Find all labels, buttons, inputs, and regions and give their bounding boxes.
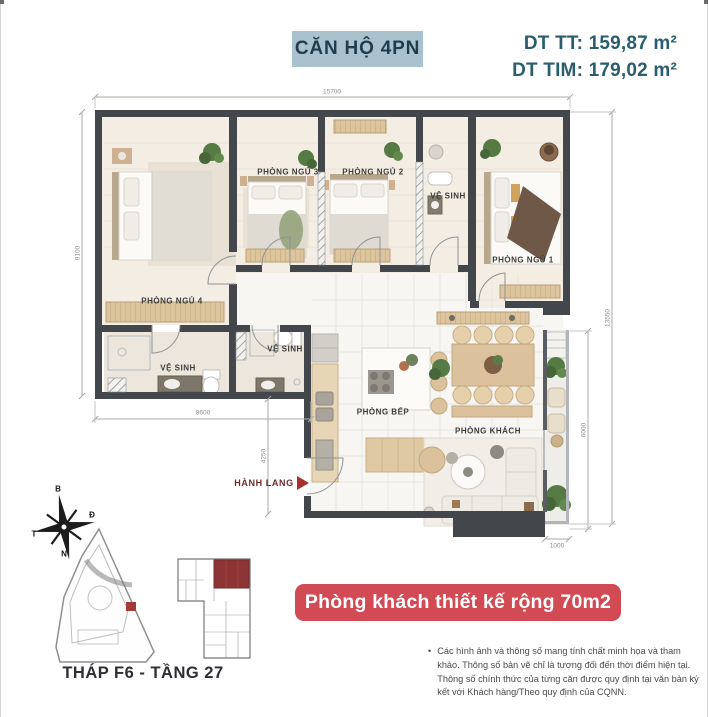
furniture-corridor-console — [437, 312, 529, 324]
room-label-hallway: HÀNH LANG — [234, 478, 293, 488]
room-label-bedroom1: PHÒNG NGỦ 1 — [492, 256, 554, 265]
dim-balcony-bottom: 1000 — [550, 543, 564, 550]
floor-keyplan — [178, 559, 250, 658]
highlighted-unit — [214, 560, 249, 588]
entry-arrow-icon — [297, 476, 309, 490]
room-label-bath-left: VỆ SINH — [160, 364, 196, 373]
compass-west-label: T — [32, 530, 37, 539]
dim-left: 9100 — [75, 246, 82, 260]
dim-right: 13550 — [605, 309, 612, 327]
room-label-bedroom2: PHÒNG NGỦ 2 — [342, 168, 404, 177]
room-label-bedroom3: PHÒNG NGỦ 3 — [257, 168, 319, 177]
room-label-bath-mid: VỆ SINH — [267, 345, 303, 354]
compass-east-label: Đ — [89, 511, 95, 520]
room-label-living: PHÒNG KHÁCH — [455, 427, 521, 436]
dim-top: 15700 — [323, 89, 341, 96]
site-plan — [56, 529, 154, 662]
disclaimer-bullet: • — [428, 645, 431, 700]
highlight-banner: Phòng khách thiết kế rộng 70m2 — [295, 584, 621, 621]
room-label-bedroom4: PHÒNG NGỦ 4 — [141, 297, 203, 306]
room-label-bath-top: VỆ SINH — [430, 192, 466, 201]
compass-south-label: N — [61, 550, 67, 559]
disclaimer-text: Các hình ảnh và thông số mang tính chất … — [437, 645, 704, 700]
dim-balcony: 6000 — [581, 423, 588, 437]
disclaimer: • Các hình ảnh và thông số mang tính chấ… — [428, 645, 704, 700]
compass-north-label: B — [55, 485, 61, 494]
dim-hallway: 4250 — [261, 449, 268, 463]
room-label-kitchen: PHÒNG BẾP — [357, 408, 410, 417]
dim-wing-bottom: 8600 — [196, 410, 210, 417]
apartment-flyer: CĂN HỘ 4PN DT TT: 159,87 m² DT TIM: 179,… — [0, 0, 708, 717]
keyplan-caption: THÁP F6 - TẦNG 27 — [58, 664, 228, 683]
